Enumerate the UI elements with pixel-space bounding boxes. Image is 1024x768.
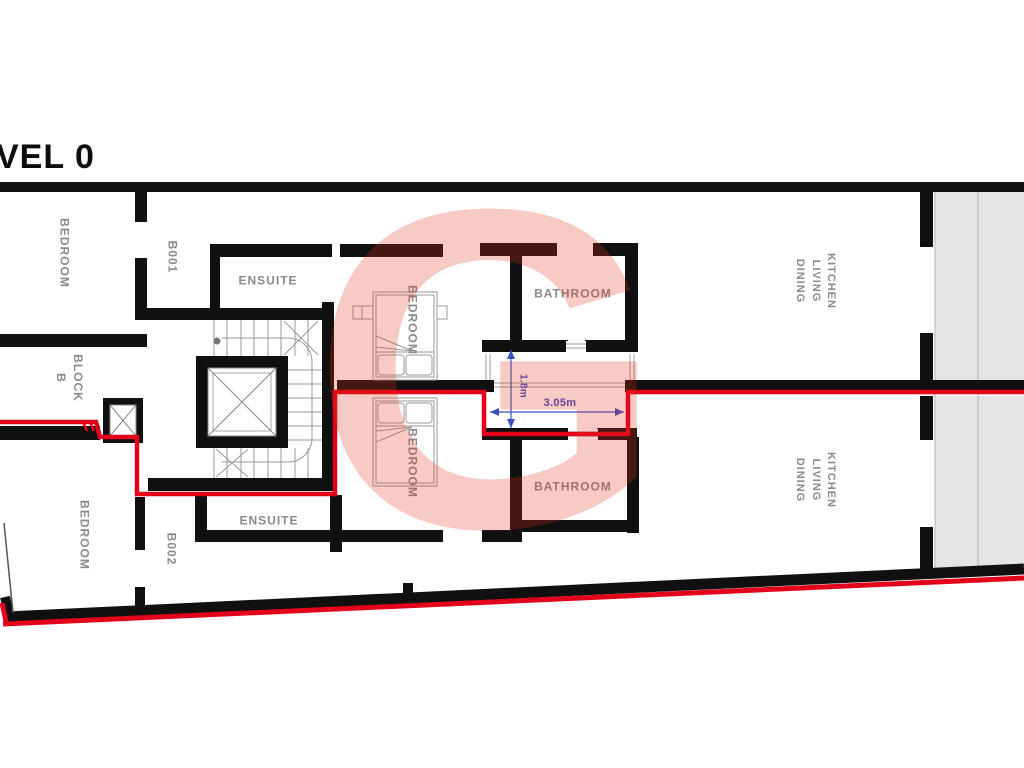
floor-plan-page: VEL 0 BEDROOM B001 ENSUITE BEDROOM BATHR… — [0, 0, 1024, 768]
room-label-bedroom-bottom-left: BEDROOM — [76, 500, 93, 570]
elevator-shaft — [208, 368, 276, 436]
block-label: BLOCK B — [52, 354, 86, 402]
walls — [0, 182, 1024, 612]
floor-plan-drawing — [0, 0, 1024, 768]
room-label-ensuite-top: ENSUITE — [238, 273, 297, 290]
room-label-bedroom-top-left: BEDROOM — [56, 218, 73, 288]
service-shaft — [110, 405, 136, 436]
dimension-label-height: 1.8m — [518, 374, 529, 398]
room-label-bathroom-bottom: BATHROOM — [534, 479, 612, 496]
room-label-bedroom-bottom-middle: BEDROOM — [404, 428, 421, 498]
room-label-kitchen-bottom: KITCHEN LIVING DINING — [792, 452, 838, 508]
page-title: VEL 0 — [0, 138, 95, 177]
room-label-bedroom-top-middle: BEDROOM — [404, 285, 421, 355]
dimension-lines — [490, 350, 624, 428]
room-label-kitchen-top: KITCHEN LIVING DINING — [792, 253, 838, 309]
room-label-bathroom-top: BATHROOM — [534, 286, 612, 303]
unit-label-b002: B002 — [163, 533, 180, 566]
room-label-ensuite-bottom: ENSUITE — [239, 513, 298, 530]
lightwell-windows — [483, 341, 637, 440]
unit-label-b001: B001 — [164, 241, 181, 274]
dimension-label-width: 3.05m — [544, 397, 577, 409]
